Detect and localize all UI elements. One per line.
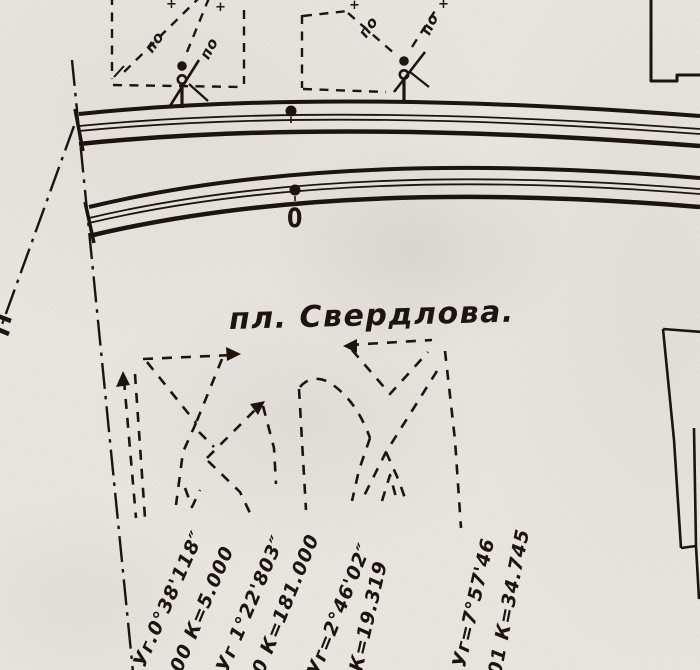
- overhead-pole-symbol: [394, 52, 429, 103]
- point-marker: [286, 106, 297, 117]
- figure-line: [199, 432, 214, 447]
- zero-chainage-label: 0: [287, 203, 302, 234]
- building-wall: [663, 329, 700, 332]
- building-outline-topright: [651, 0, 700, 81]
- figure-line: [382, 475, 397, 501]
- figure-line: [196, 359, 222, 423]
- parcel-edge: [303, 11, 347, 16]
- tram-rail-line: [79, 115, 700, 129]
- left-edge-mark: [0, 329, 9, 334]
- road-edge-line: [89, 197, 700, 236]
- boundary-dashdot-line: [72, 60, 133, 670]
- arrowhead-right: [226, 347, 241, 361]
- figure-line: [185, 488, 200, 507]
- figure-line: [349, 340, 432, 345]
- figure-line: [299, 389, 306, 510]
- left-edge-mark: [0, 316, 11, 321]
- pole-head-icon: [177, 61, 187, 71]
- dashed-track-figure-right: [299, 340, 461, 528]
- overhead-pole-symbol: [170, 60, 208, 108]
- pole-bracket: [410, 72, 429, 87]
- figure-line: [124, 380, 136, 518]
- parcel-edge: [303, 89, 386, 92]
- building-wall: [694, 428, 696, 545]
- survey-plus-mark: +: [349, 0, 360, 13]
- arrowhead-left: [343, 339, 357, 353]
- pole-bracket: [394, 52, 425, 92]
- figure-line: [352, 350, 428, 394]
- survey-plus-mark: +: [215, 0, 226, 15]
- figure-line: [445, 351, 461, 528]
- square-name-label: пл. Свердлова.: [229, 295, 516, 337]
- building-outline-right: [663, 329, 700, 599]
- figure-line: [364, 371, 437, 496]
- figure-line: [207, 407, 258, 458]
- boundary-diagonal-line: [0, 126, 74, 330]
- building-wall: [681, 546, 699, 599]
- corner-check-mark: [114, 66, 124, 77]
- figure-line: [135, 374, 145, 518]
- pole-head-icon: [399, 56, 409, 66]
- figure-line: [263, 406, 276, 484]
- figure-line: [147, 362, 196, 423]
- dashed-track-figure-left: [124, 355, 276, 518]
- survey-plus-mark: +: [166, 0, 177, 12]
- figure-line: [143, 355, 233, 359]
- street-curve-upper: [75, 101, 700, 151]
- building-wall: [663, 329, 681, 548]
- parcel-edge: [113, 85, 244, 87]
- arrowhead-up: [116, 371, 130, 387]
- figure-line: [208, 461, 250, 513]
- scanned-map-page: пл. Свердлова. 0 по по по по + + + + Уг.…: [0, 0, 700, 670]
- figure-line: [300, 379, 370, 438]
- street-curve-lower: [85, 168, 700, 243]
- point-marker: [290, 185, 301, 196]
- survey-plus-mark: +: [438, 0, 449, 12]
- road-edge-line: [79, 131, 700, 146]
